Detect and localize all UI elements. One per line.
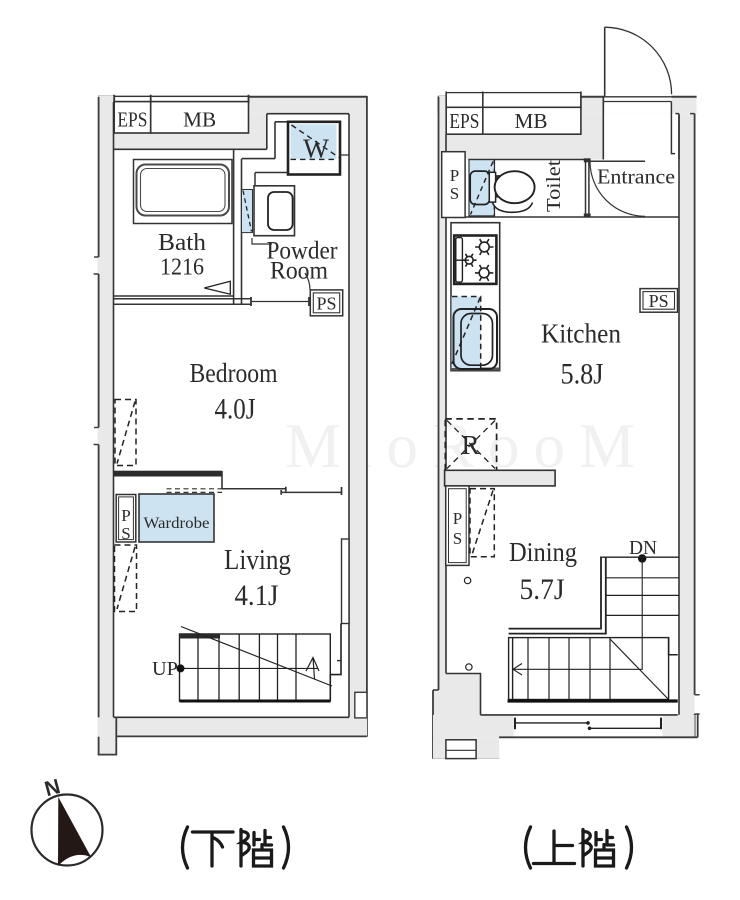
svg-text:MB: MB <box>515 109 548 133</box>
svg-text:Bedroom: Bedroom <box>190 357 278 388</box>
svg-text:Toilet: Toilet <box>543 160 565 212</box>
svg-text:S: S <box>450 184 459 203</box>
svg-text:PS: PS <box>316 294 336 314</box>
svg-text:P: P <box>453 509 462 528</box>
svg-text:R: R <box>461 430 479 460</box>
svg-text:EPS: EPS <box>117 108 147 132</box>
svg-text:Bath: Bath <box>158 230 206 256</box>
svg-text:Entrance: Entrance <box>597 165 675 189</box>
svg-text:MB: MB <box>183 108 216 132</box>
svg-text:4.1J: 4.1J <box>235 580 279 612</box>
svg-text:S: S <box>121 524 130 543</box>
svg-text:W: W <box>303 133 329 164</box>
svg-text:Dining: Dining <box>509 536 577 567</box>
svg-text:Room: Room <box>270 258 329 285</box>
svg-text:Kitchen: Kitchen <box>541 318 621 349</box>
svg-text:PS: PS <box>649 291 669 311</box>
svg-text:Wardrobe: Wardrobe <box>144 515 210 532</box>
svg-text:4.0J: 4.0J <box>215 394 256 426</box>
svg-text:Living: Living <box>224 545 291 576</box>
svg-text:EPS: EPS <box>449 109 479 133</box>
svg-text:1216: 1216 <box>160 255 204 281</box>
svg-text:5.8J: 5.8J <box>561 359 604 391</box>
svg-text:5.7J: 5.7J <box>520 574 565 606</box>
svg-text:P: P <box>450 166 459 185</box>
svg-text:P: P <box>121 506 130 525</box>
svg-text:UP: UP <box>152 658 178 680</box>
svg-text:S: S <box>453 529 462 548</box>
